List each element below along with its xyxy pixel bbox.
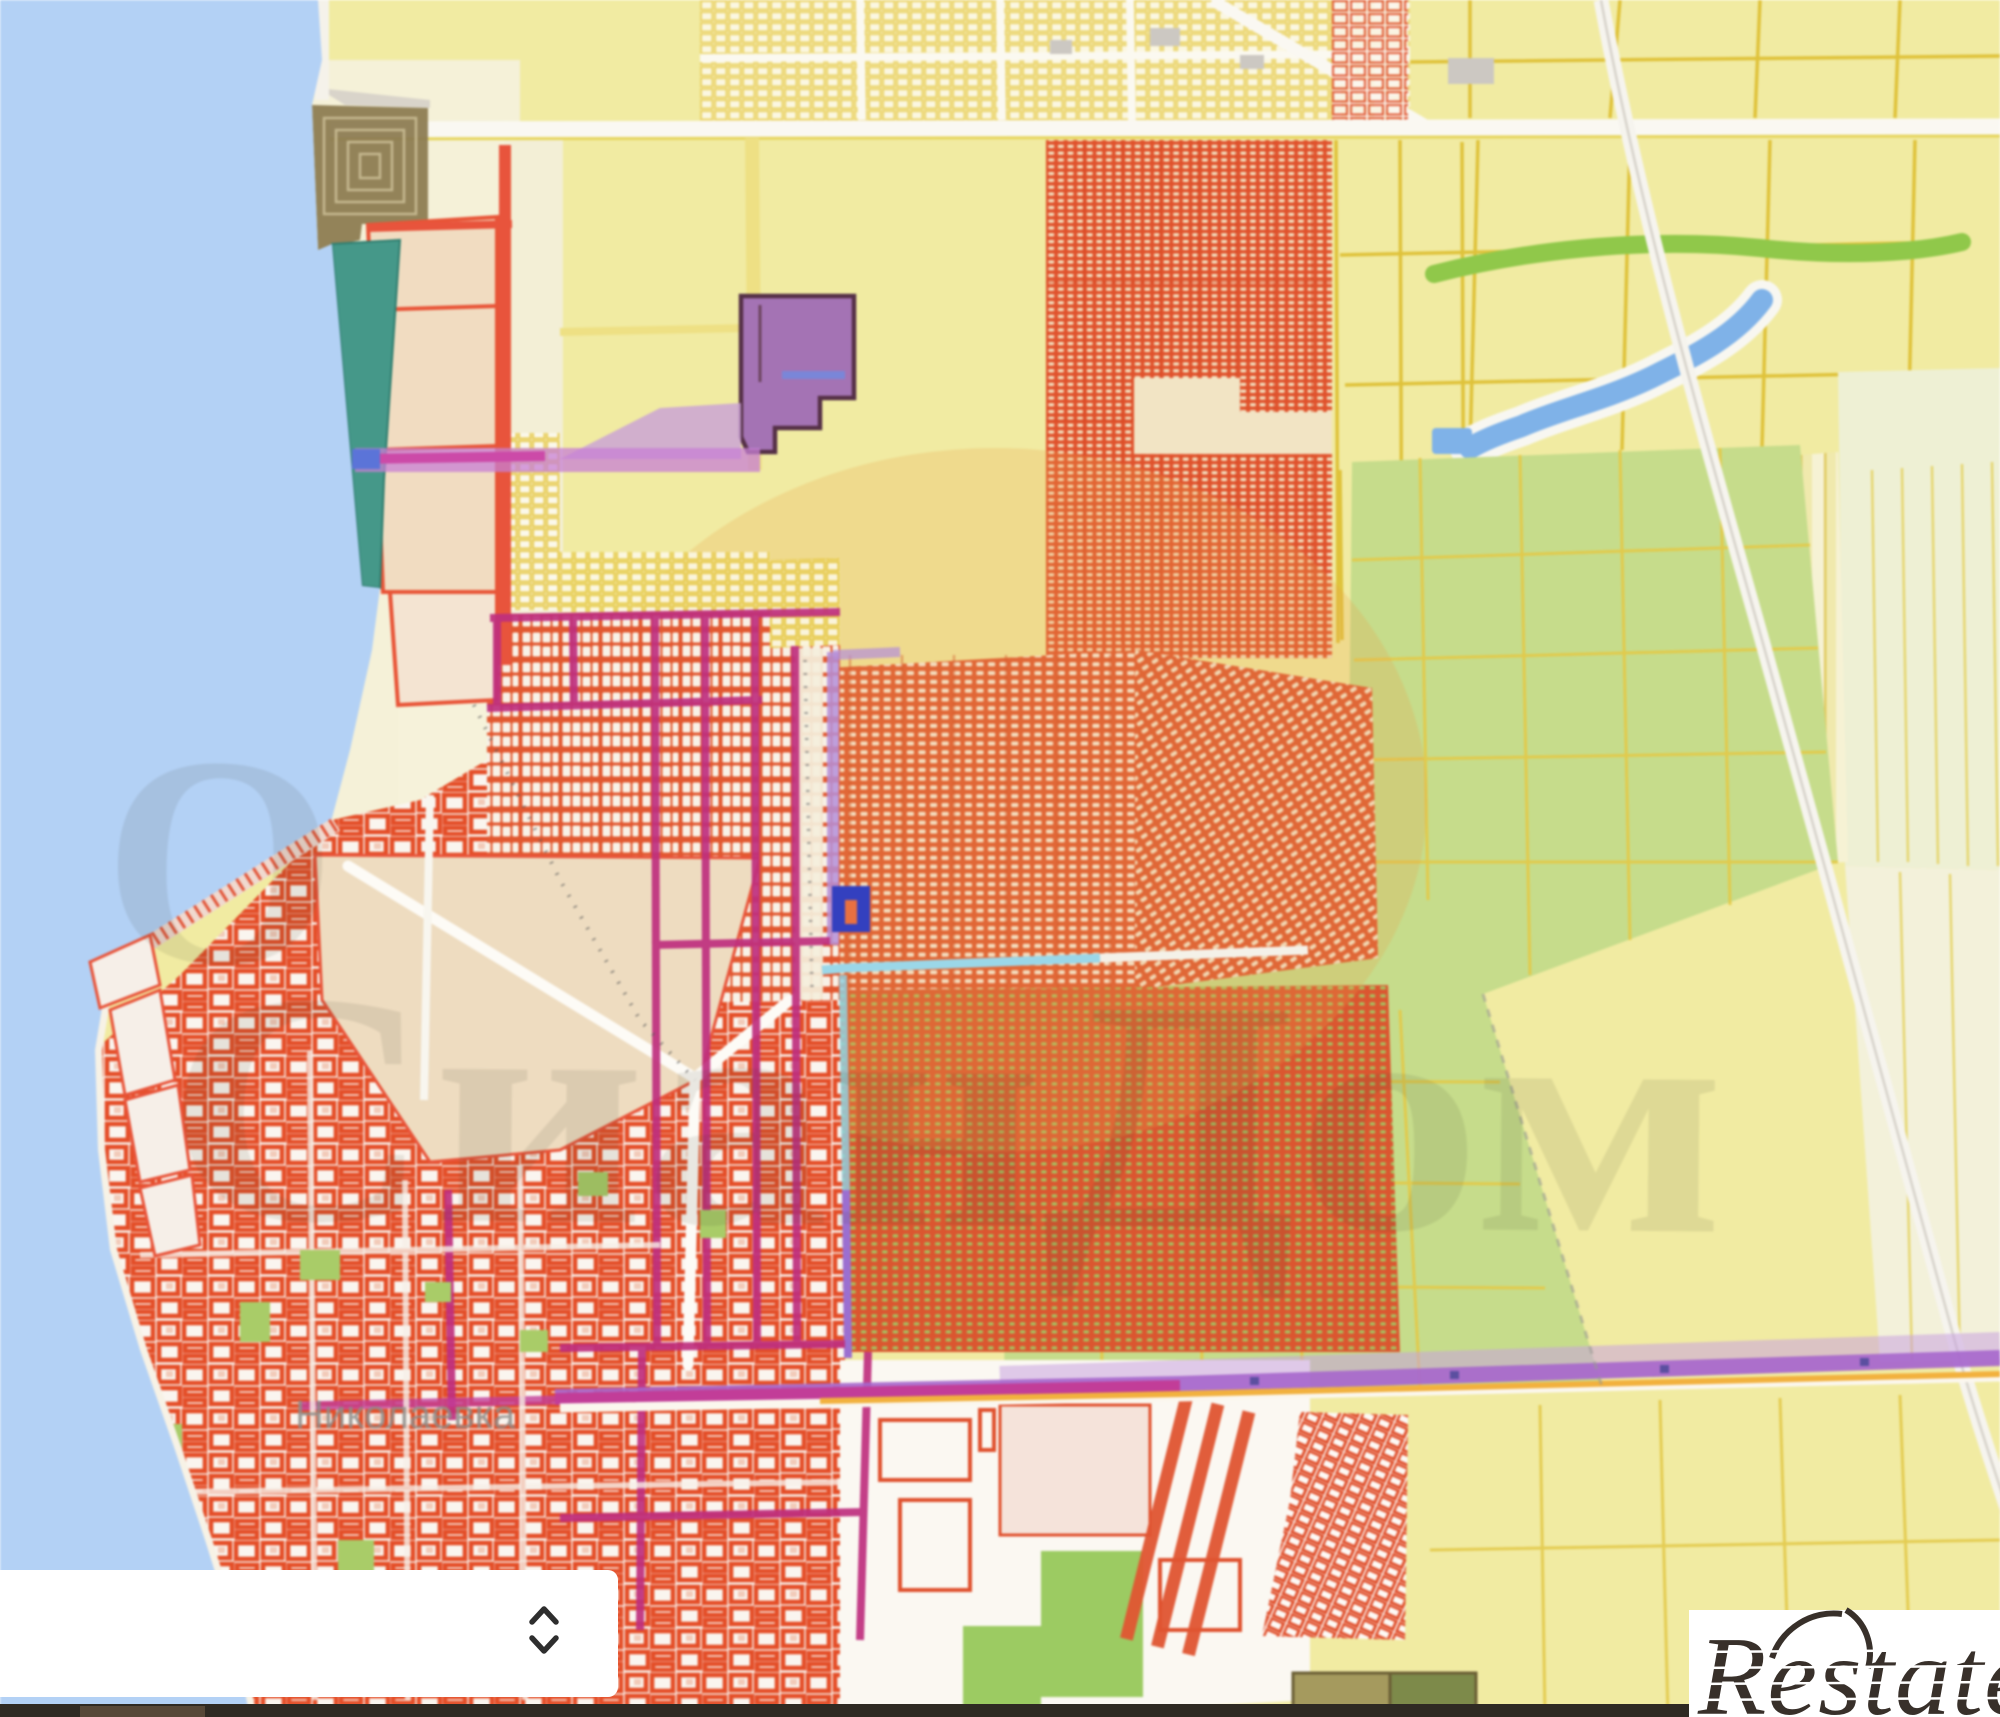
svg-text:Николаевка: Николаевка [295,1393,516,1437]
svg-text:О: О [98,691,343,1031]
svg-text:СианДом: СианДом [164,925,1727,1304]
